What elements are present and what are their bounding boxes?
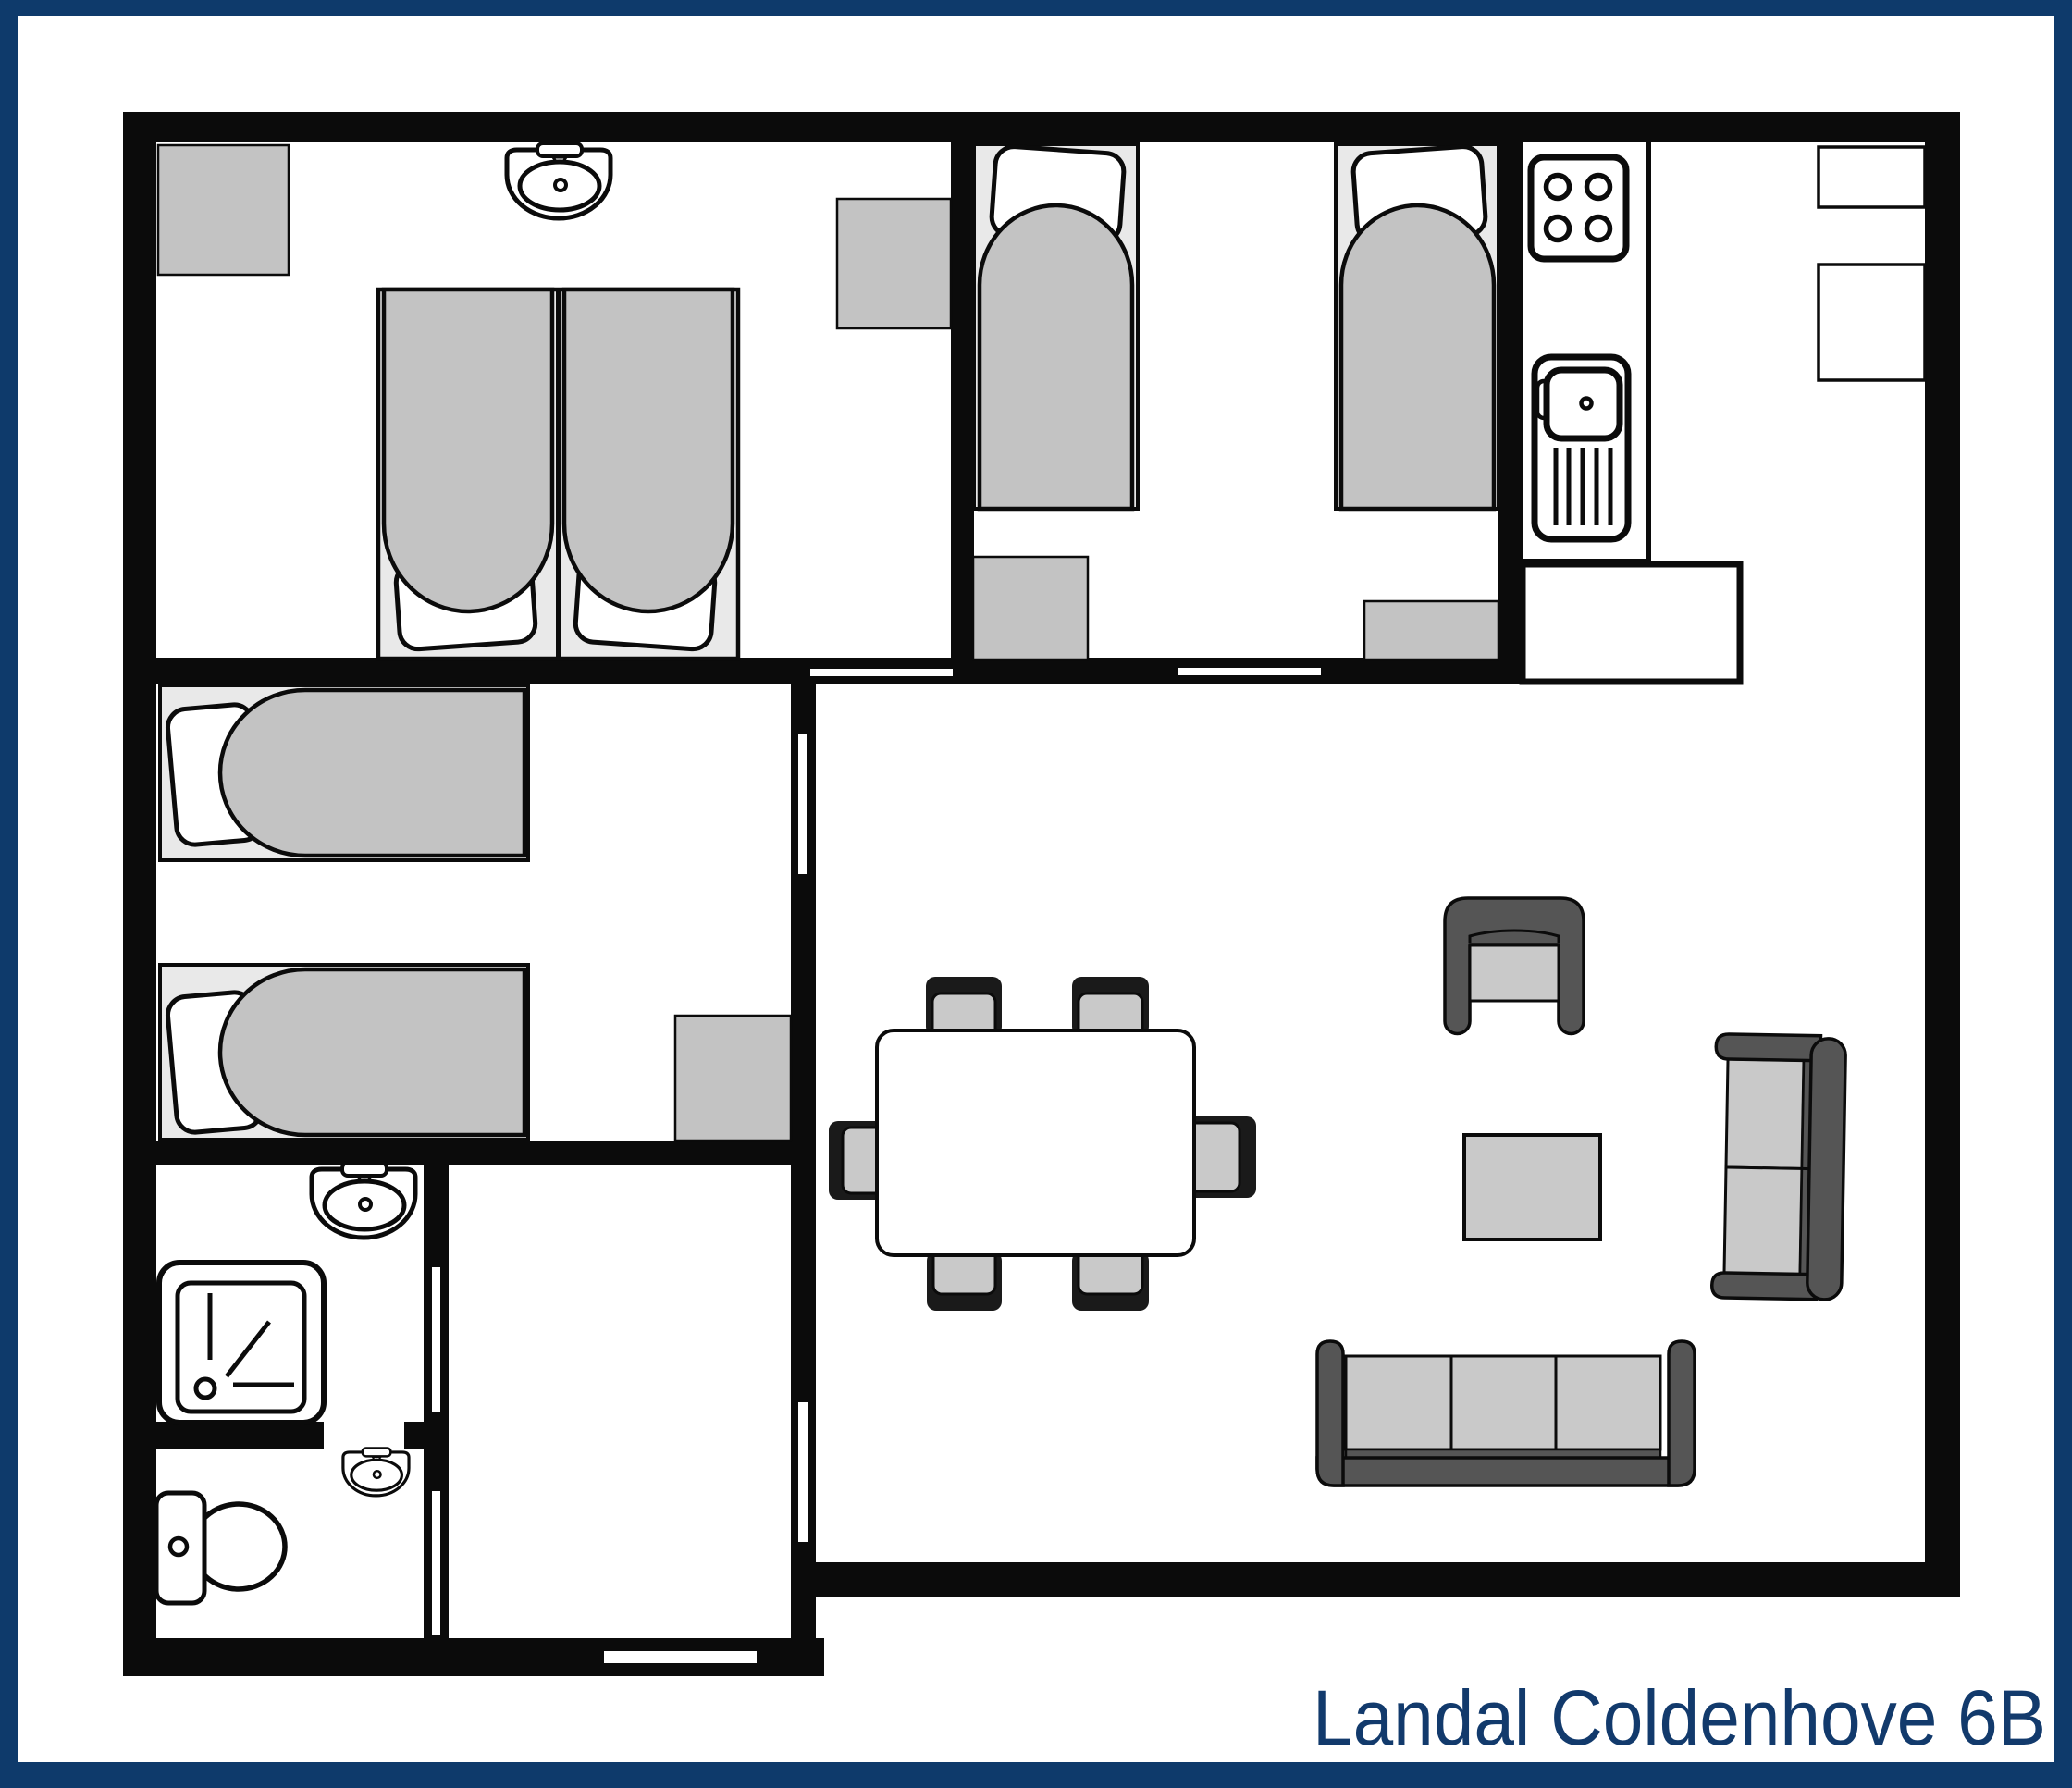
svg-text:Landal Coldenhove 6B: Landal Coldenhove 6B bbox=[1313, 1674, 2046, 1761]
